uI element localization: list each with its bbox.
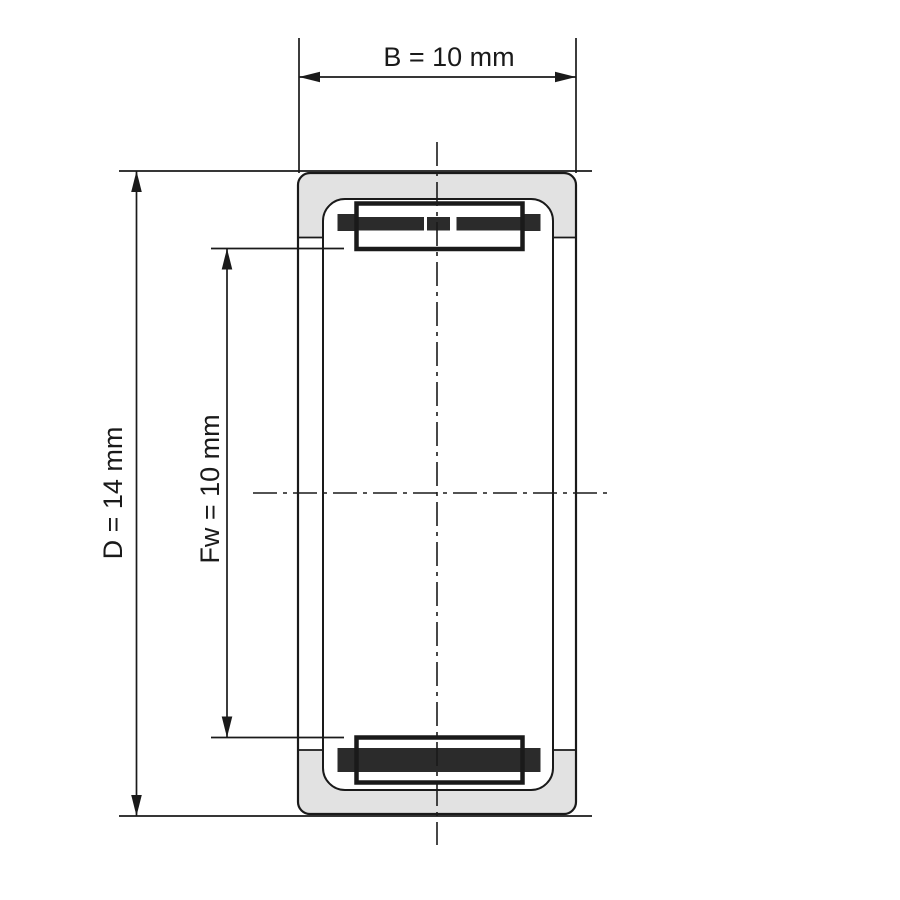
dimension-B-label: B = 10 mm [383, 42, 514, 72]
roller-set-top [338, 204, 541, 250]
needle-roller-top-segment-right [457, 217, 541, 231]
dimension-D-label: D = 14 mm [98, 427, 128, 560]
needle-roller-top-segment-left [338, 217, 425, 231]
roller-set-bottom [338, 738, 541, 783]
needle-roller-bottom [338, 748, 541, 772]
needle-roller-top-segment-center [427, 217, 450, 231]
dimension-Fw-label: Fw = 10 mm [195, 414, 225, 563]
bearing-drawing-page: B = 10 mm D = 14 mm Fw = 10 mm [0, 0, 900, 900]
bearing-cross-section-diagram: B = 10 mm D = 14 mm Fw = 10 mm [0, 0, 900, 900]
cup-inner-contour [323, 199, 553, 790]
